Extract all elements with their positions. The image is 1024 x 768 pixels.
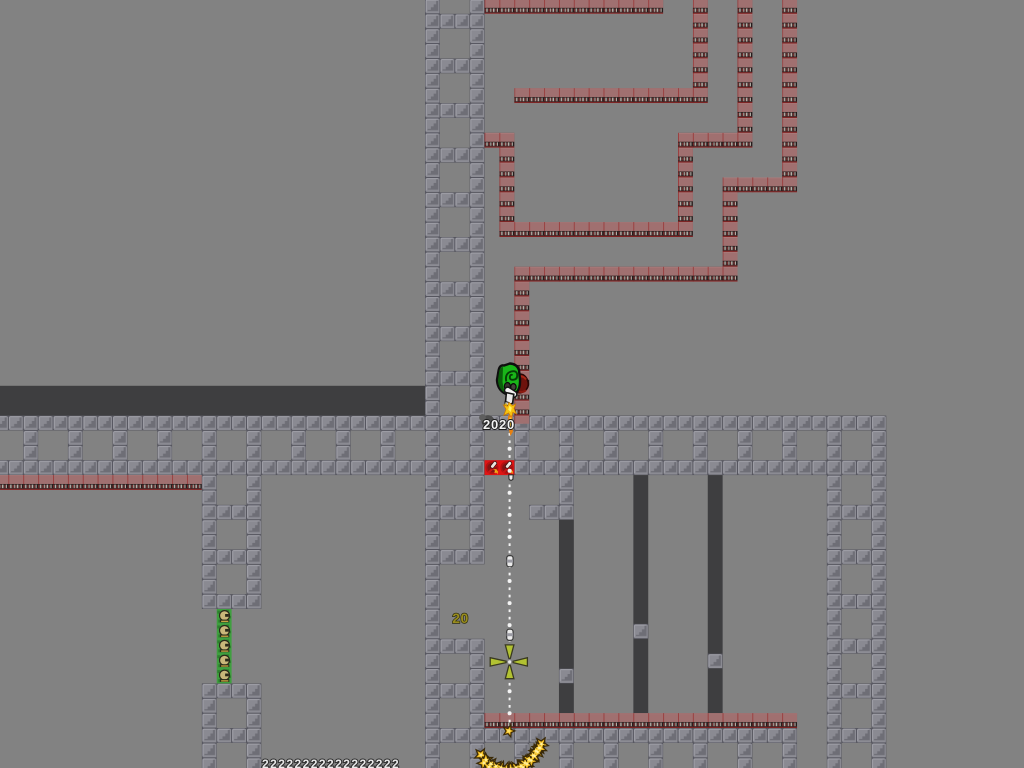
svg-text:22222222222222222: 22222222222222222 [262, 757, 400, 768]
svg-text:2020: 2020 [483, 417, 515, 432]
svg-text:20: 20 [452, 610, 469, 626]
